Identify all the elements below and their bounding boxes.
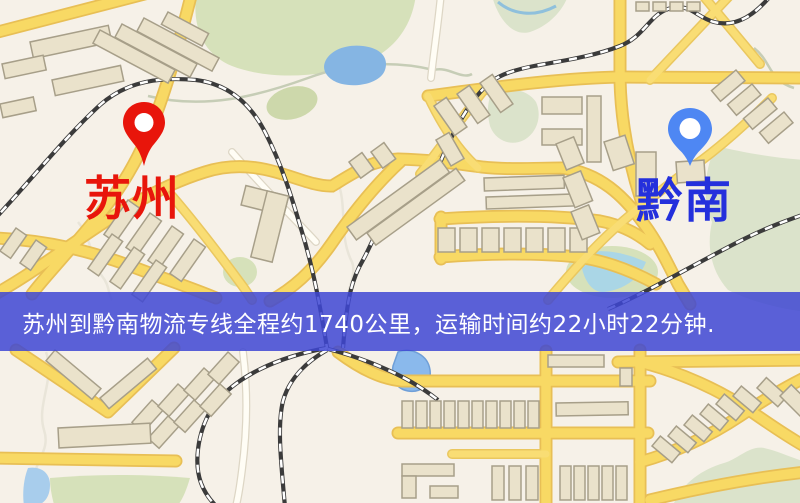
route-info-text: 苏州到黔南物流专线全程约1740公里，运输时间约22小时22分钟. bbox=[0, 305, 715, 339]
origin-pin-hole bbox=[135, 113, 154, 132]
destination-label: 黔南 bbox=[636, 178, 732, 225]
origin-pin-shape bbox=[123, 102, 165, 166]
origin-label: 苏州 bbox=[84, 176, 180, 223]
map-viewport[interactable]: 苏州 黔南 苏州到黔南物流专线全程约1740公里，运输时间约22小时22分钟. bbox=[0, 0, 800, 503]
destination-pin-hole bbox=[680, 118, 701, 139]
destination-pin-icon[interactable] bbox=[665, 106, 715, 172]
map-canvas[interactable] bbox=[0, 0, 800, 503]
route-info-banner: 苏州到黔南物流专线全程约1740公里，运输时间约22小时22分钟. bbox=[0, 292, 800, 351]
origin-pin-icon[interactable] bbox=[121, 100, 167, 172]
